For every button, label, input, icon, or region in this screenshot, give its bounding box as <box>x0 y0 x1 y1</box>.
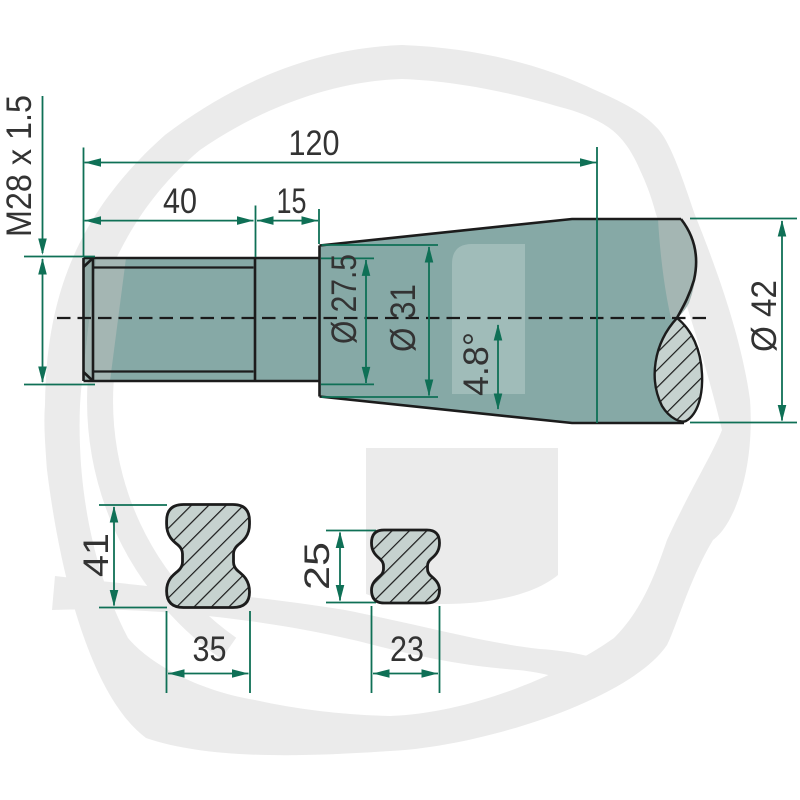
svg-text:40: 40 <box>163 181 197 221</box>
svg-text:Ø 27.5: Ø 27.5 <box>324 254 364 344</box>
svg-text:15: 15 <box>277 181 307 221</box>
svg-text:Ø 42: Ø 42 <box>744 280 784 352</box>
svg-text:120: 120 <box>289 123 340 163</box>
svg-text:41: 41 <box>76 533 116 577</box>
svg-text:M28 x 1.5: M28 x 1.5 <box>0 95 39 237</box>
svg-text:4.8°: 4.8° <box>456 332 496 396</box>
svg-text:35: 35 <box>193 629 227 669</box>
svg-text:Ø 31: Ø 31 <box>383 284 423 352</box>
svg-text:23: 23 <box>390 629 424 669</box>
svg-text:25: 25 <box>297 542 337 590</box>
